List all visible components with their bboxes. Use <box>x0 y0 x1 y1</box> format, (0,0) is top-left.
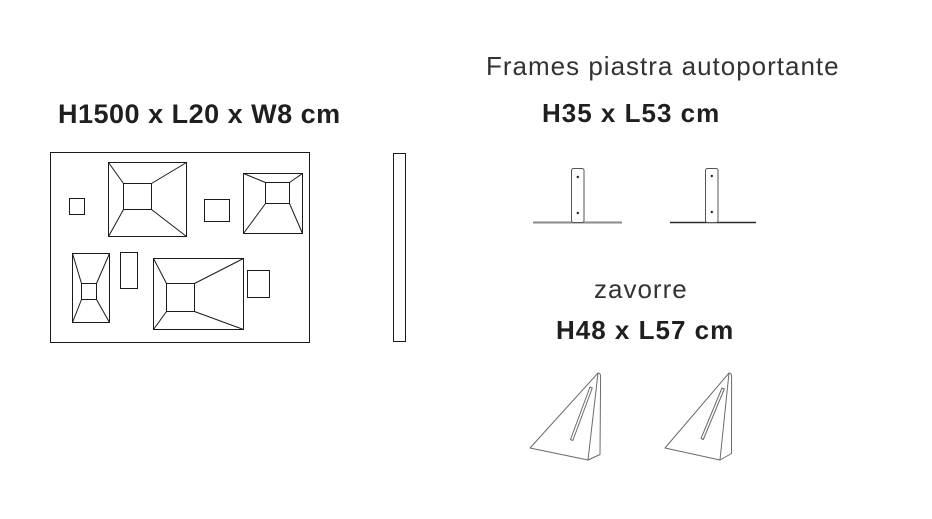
relief-small-square-2 <box>205 200 230 222</box>
relief-pyramid-large-top <box>109 163 187 237</box>
panel-side-view <box>392 153 408 343</box>
screw-hole <box>577 212 579 214</box>
frame-stand-left <box>533 169 622 223</box>
panel-front-view <box>50 152 311 344</box>
screw-hole <box>711 211 713 213</box>
product-spec-sheet: H1500 x L20 x W8 cm <box>0 0 932 519</box>
panel-outline <box>51 153 310 343</box>
panel-dimensions-label: H1500 x L20 x W8 cm <box>58 100 341 128</box>
frames-title: Frames piastra autoportante <box>486 53 840 80</box>
screw-hole <box>711 175 713 177</box>
zavorre-dimensions-label: H48 x L57 cm <box>556 317 734 344</box>
panel-side-outline <box>394 154 406 342</box>
relief-small-square-1 <box>70 199 85 215</box>
zavorre-wedges-drawing <box>520 365 745 465</box>
frame-stand-right <box>670 169 756 223</box>
zavorre-wedge-left <box>530 373 601 460</box>
zavorre-wedge-right <box>665 373 732 460</box>
frame-stands-drawing <box>525 160 765 230</box>
wedge-front-face <box>530 373 598 460</box>
zavorre-title: zavorre <box>594 276 688 303</box>
relief-pyramid-vertical-bottom-left <box>73 254 110 323</box>
relief-pyramid-medium-top-right <box>244 174 303 234</box>
screw-hole <box>577 176 579 178</box>
relief-small-square-3 <box>248 271 270 298</box>
wedge-front-face <box>665 373 729 460</box>
frames-dimensions-label: H35 x L53 cm <box>542 100 720 127</box>
wedge-slot <box>701 388 724 440</box>
relief-plain-rectangle <box>121 253 138 289</box>
wedge-slot <box>571 387 593 441</box>
relief-pyramid-large-bottom <box>154 259 244 330</box>
